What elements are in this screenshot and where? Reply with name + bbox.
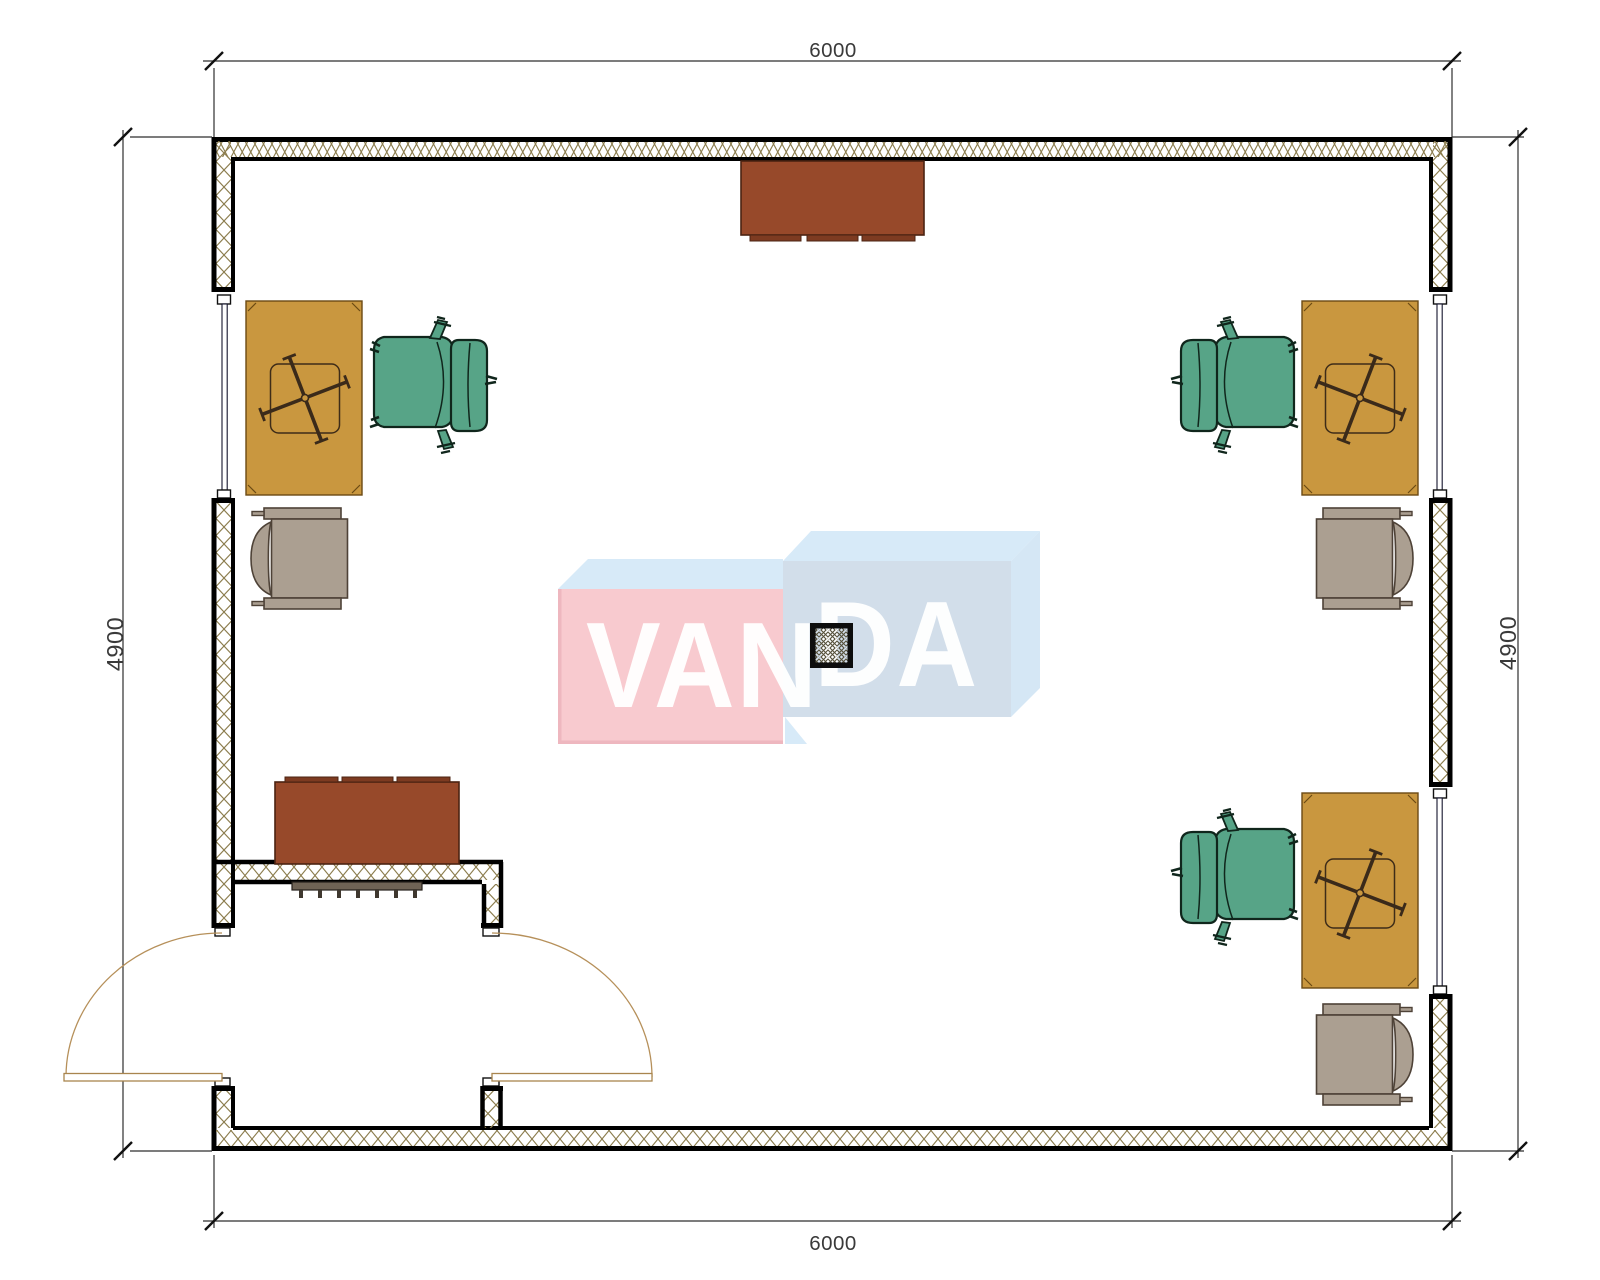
- svg-text:VAN: VAN: [586, 597, 819, 734]
- svg-text:4900: 4900: [1495, 616, 1521, 670]
- svg-text:4900: 4900: [102, 617, 128, 671]
- svg-text:6000: 6000: [809, 1232, 857, 1255]
- svg-text:6000: 6000: [809, 39, 857, 62]
